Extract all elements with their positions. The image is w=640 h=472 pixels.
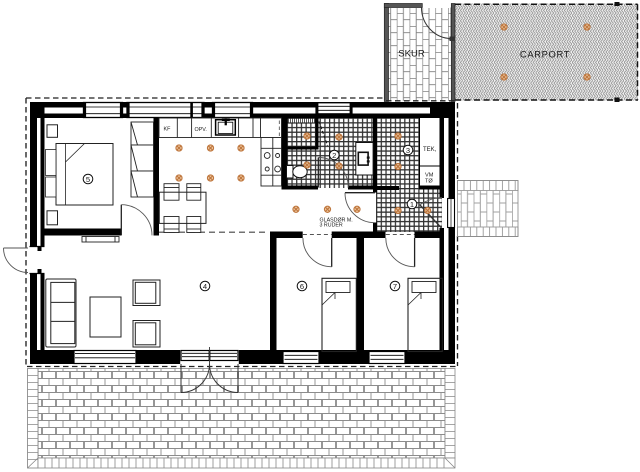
svg-text:7: 7: [393, 282, 397, 291]
svg-text:5: 5: [86, 175, 90, 184]
svg-text:2: 2: [332, 151, 336, 160]
svg-text:4: 4: [203, 282, 207, 291]
svg-text:3: 3: [406, 146, 410, 155]
svg-text:6: 6: [300, 282, 304, 291]
svg-text:SKUR: SKUR: [398, 49, 425, 60]
svg-text:OPV.: OPV.: [195, 127, 207, 133]
svg-text:CARPORT: CARPORT: [520, 50, 570, 60]
svg-text:3 RUDER: 3 RUDER: [320, 223, 343, 229]
svg-text:1: 1: [410, 200, 414, 209]
svg-text:KF: KF: [164, 127, 172, 133]
svg-text:TØ: TØ: [425, 179, 433, 185]
svg-text:TEK,: TEK,: [423, 147, 437, 153]
